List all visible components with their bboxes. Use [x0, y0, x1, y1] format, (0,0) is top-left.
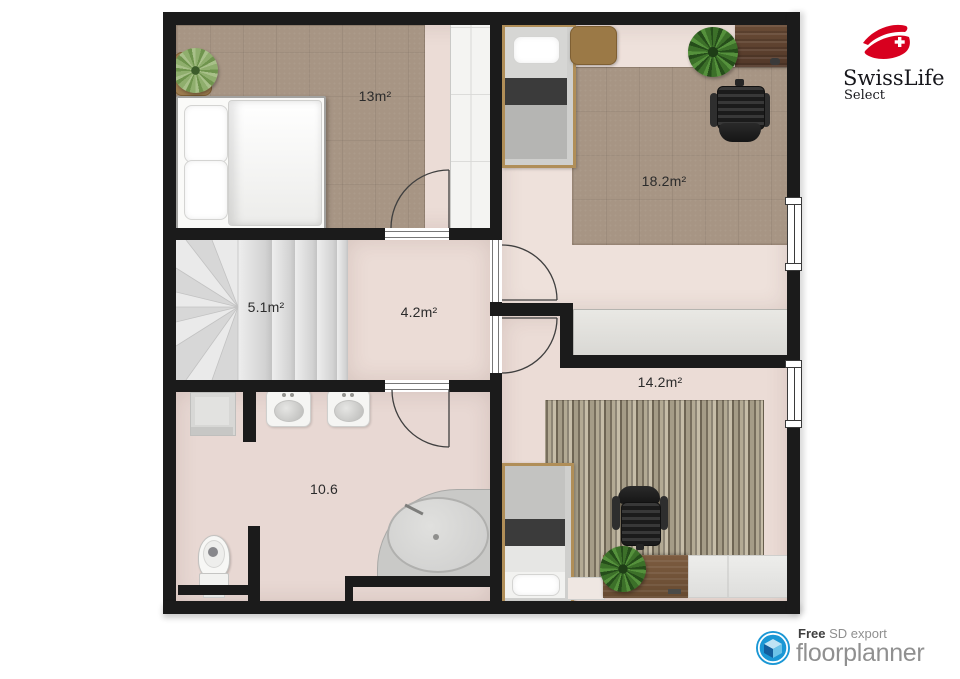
door-opening — [385, 380, 449, 392]
door-opening — [490, 316, 502, 373]
bedside-table — [570, 26, 617, 65]
room-area-label: 13m² — [359, 88, 392, 104]
bed-pillow — [512, 574, 560, 596]
wall-exterior-bottom — [163, 601, 800, 614]
swisslife-flag-icon — [853, 22, 915, 66]
window-jamb — [785, 360, 802, 368]
bed-pillow — [184, 105, 228, 163]
wall-partition — [243, 392, 256, 442]
chair-armrest — [660, 496, 668, 530]
built-in-closet — [573, 309, 788, 356]
wall-partition — [248, 526, 260, 601]
room-area-label: 10.6 — [310, 481, 338, 497]
room-area-label: 14.2m² — [638, 374, 683, 390]
room-area-label: 5.1m² — [248, 299, 285, 315]
sink-bowl — [274, 400, 304, 422]
bed-blanket-gray — [505, 105, 567, 159]
swisslife-wordmark: SwissLife — [843, 66, 945, 90]
bedroom-13-wardrobe — [450, 25, 491, 228]
window-jamb — [785, 420, 802, 428]
bed-pillow — [513, 36, 560, 64]
wall-segment — [490, 12, 502, 240]
chair-knob — [735, 79, 744, 86]
wall-segment — [163, 228, 385, 240]
single-bed — [502, 24, 576, 168]
wall-exterior-right — [787, 12, 800, 614]
floorplan-export-page: 13m² 18.2m² 5.1m² 4.2m² 14.2m² 10.6 Swis… — [0, 0, 960, 679]
wall-low-segment — [345, 576, 353, 601]
wall-exterior-left — [163, 12, 176, 614]
window — [787, 200, 802, 268]
chair-seat — [621, 502, 661, 546]
bed-blanket-dark — [505, 519, 565, 546]
sink-bowl — [334, 400, 364, 422]
wall-segment — [560, 355, 800, 368]
swisslife-select-label: Select — [844, 88, 885, 103]
room-area-label: 18.2m² — [642, 173, 687, 189]
wall-segment — [449, 228, 490, 240]
bed-pillow — [184, 160, 228, 220]
window-jamb — [785, 263, 802, 271]
wall-low-segment — [178, 585, 248, 595]
single-bed — [502, 463, 574, 607]
chair-backrest — [719, 123, 761, 142]
keyboard — [668, 589, 681, 594]
sink — [266, 389, 311, 427]
bed-blanket-gray — [505, 466, 565, 519]
faucet-icon — [282, 393, 286, 397]
chair-knob — [636, 544, 644, 550]
faucet-icon — [290, 393, 294, 397]
shower-edge — [191, 427, 233, 435]
nightstand — [567, 577, 605, 600]
computer-mouse — [770, 58, 780, 65]
window-jamb — [785, 197, 802, 205]
plant-icon — [688, 27, 738, 77]
dresser — [688, 555, 789, 598]
plant-icon — [600, 546, 646, 592]
chair-armrest — [612, 496, 620, 530]
door-opening — [490, 240, 502, 302]
office-chair — [611, 480, 669, 550]
double-bed — [176, 96, 326, 232]
toilet-flush-button — [208, 547, 218, 557]
bed-sheet — [505, 546, 565, 572]
room-area-label: 4.2m² — [401, 304, 438, 320]
wall-segment — [490, 302, 502, 316]
sink — [327, 389, 370, 427]
wall-low-segment — [345, 576, 502, 587]
wall-segment — [163, 380, 385, 392]
shower-tray — [195, 397, 229, 425]
faucet-icon — [342, 393, 346, 397]
bathtub-drain — [433, 534, 439, 540]
door-opening — [385, 228, 449, 240]
office-chair — [710, 78, 768, 144]
floorplanner-logo-icon — [755, 630, 791, 666]
bed-blanket-dark — [505, 78, 567, 105]
window — [787, 363, 802, 425]
floorplanner-wordmark: floorplanner — [796, 639, 924, 668]
faucet-icon — [350, 393, 354, 397]
bed-duvet — [228, 100, 322, 226]
wall-segment — [449, 380, 502, 392]
plant-icon — [173, 48, 218, 93]
shower — [190, 392, 236, 436]
wall-exterior-top — [163, 12, 800, 25]
